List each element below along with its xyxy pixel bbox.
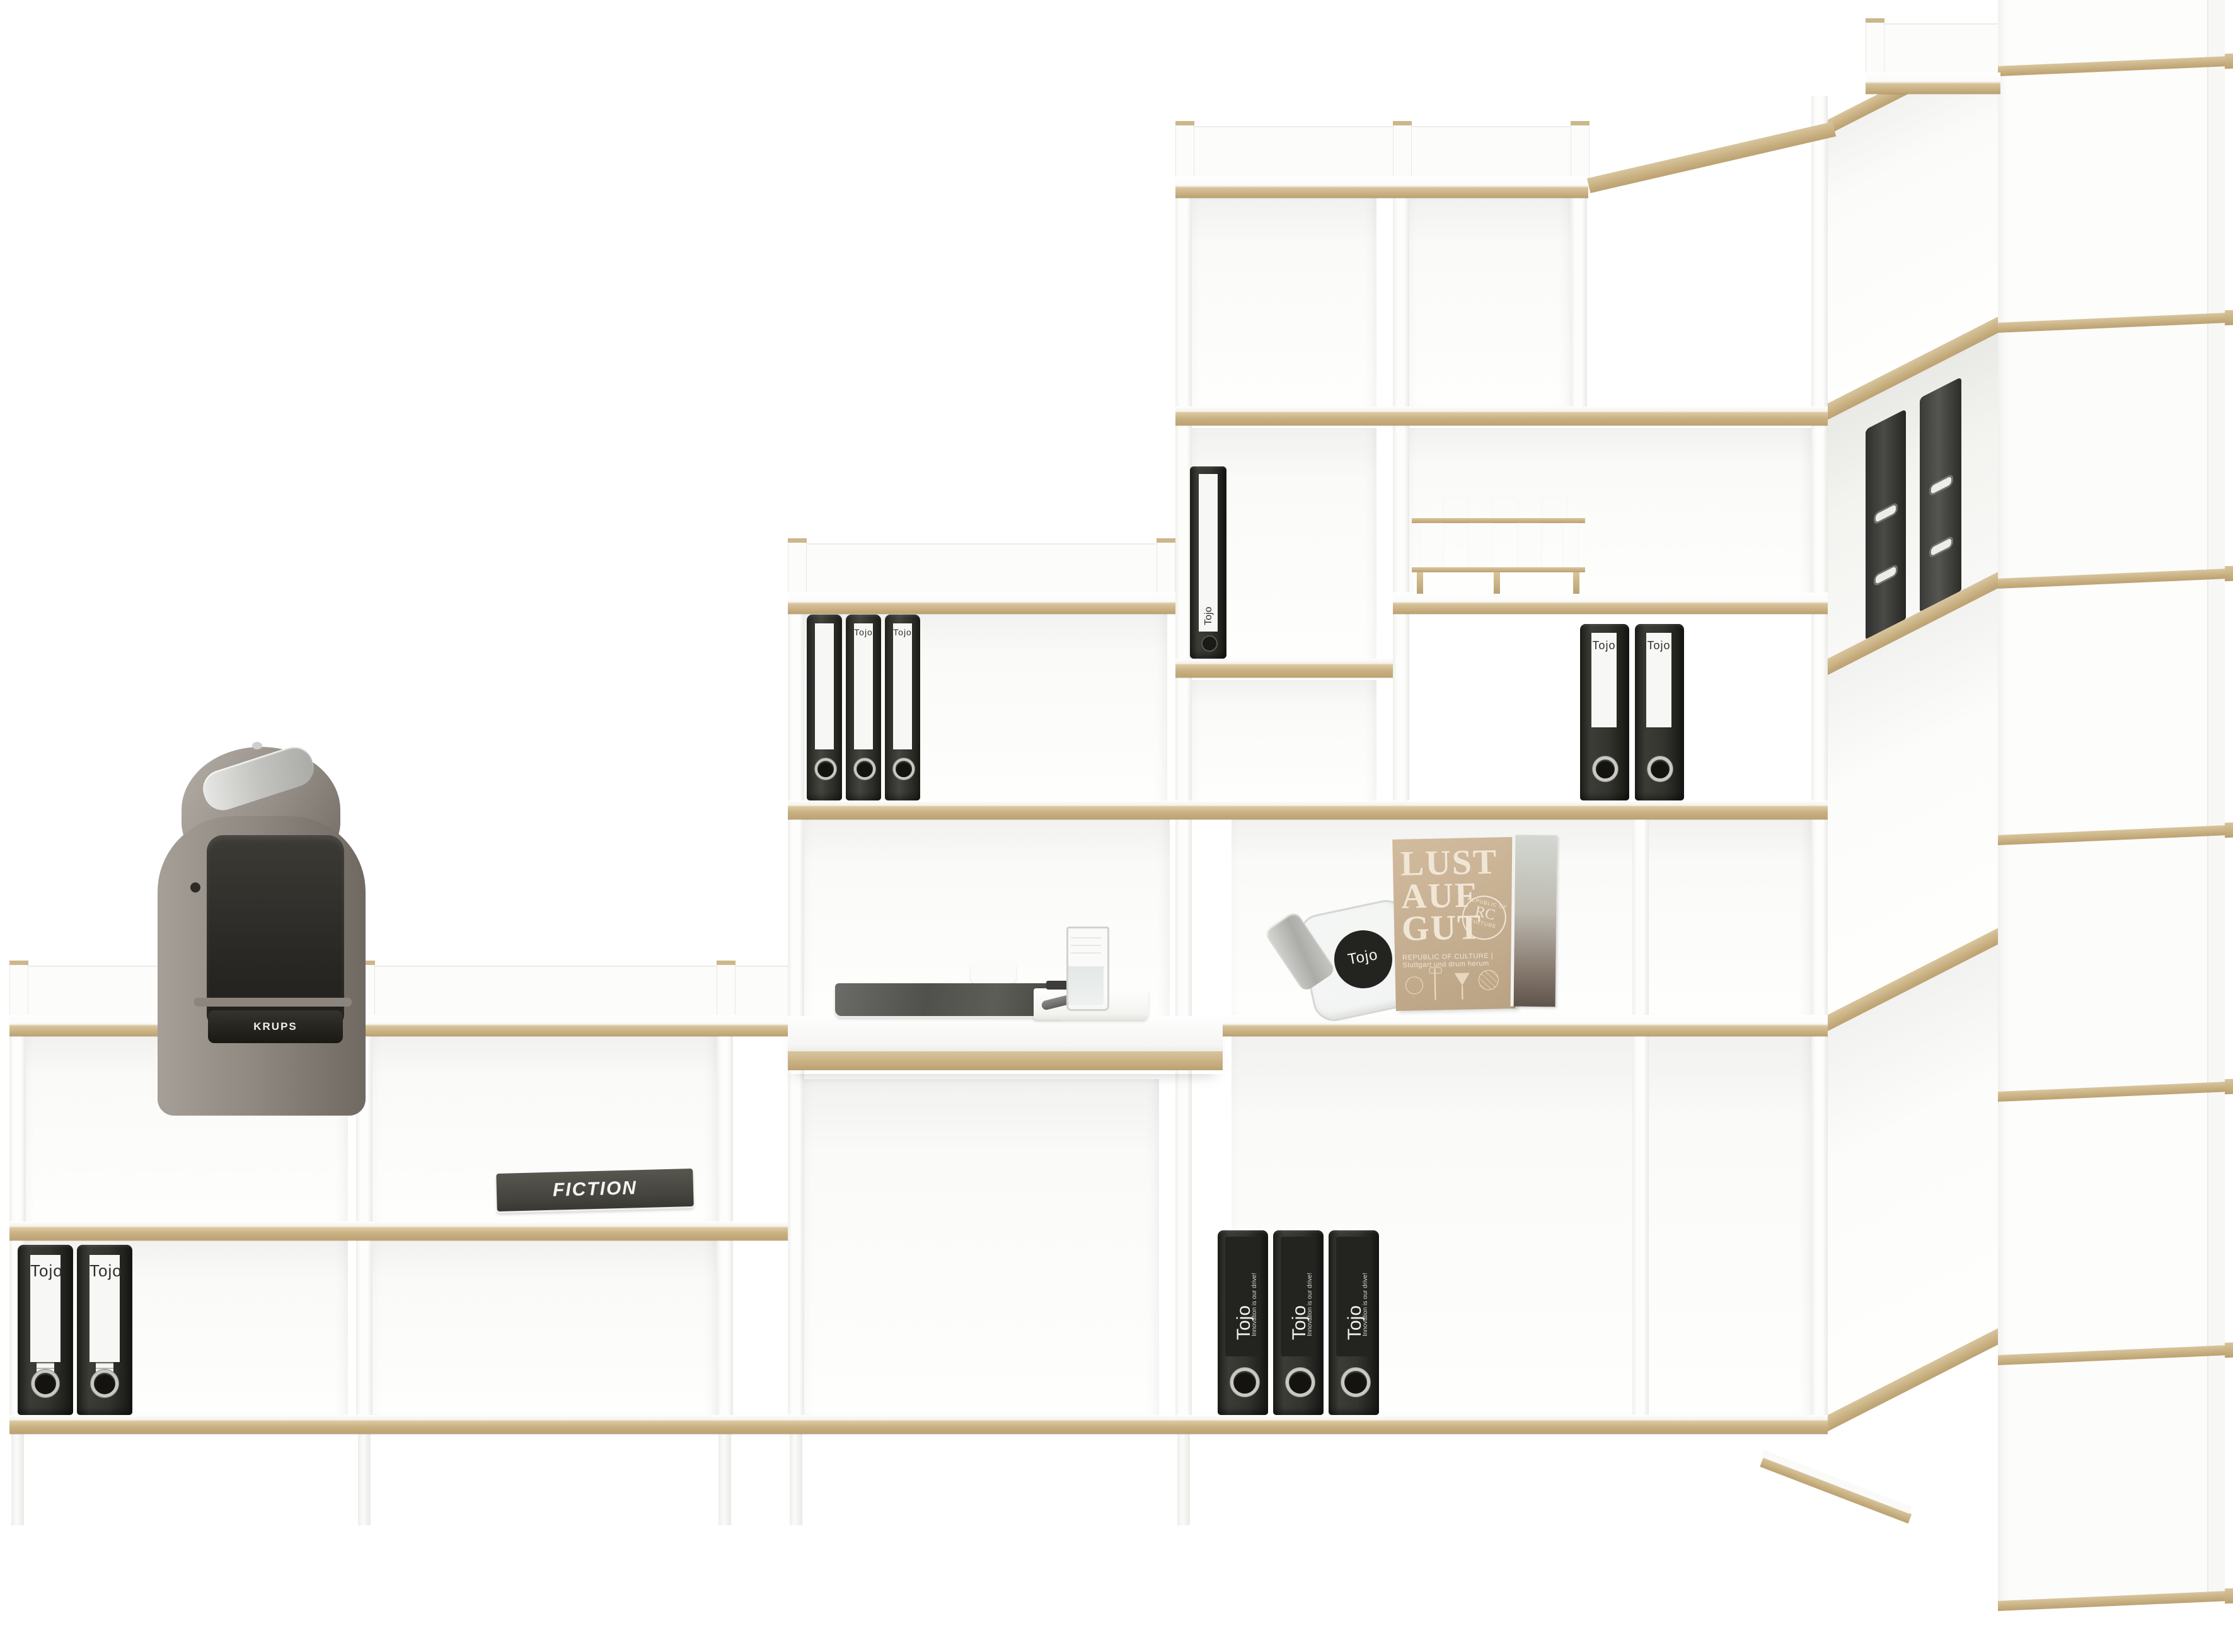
binder: Tojo xyxy=(1580,624,1629,800)
tower-panel xyxy=(1998,1355,2225,1611)
binder-label-dark: Tojo Innovation is our drive! xyxy=(1336,1237,1371,1356)
binder-label: Tojo xyxy=(893,623,912,749)
shelf-board xyxy=(9,1015,788,1036)
binder-label: Tojo xyxy=(854,623,873,749)
tower-panel xyxy=(1998,579,2225,835)
tower-panel xyxy=(1998,323,2225,579)
model-panel xyxy=(1419,523,1443,567)
model-leg xyxy=(1417,572,1423,594)
back-upstand xyxy=(788,543,1175,594)
water-glass xyxy=(1066,927,1109,1011)
divider-panel xyxy=(1393,176,1409,800)
panel-cap xyxy=(1393,121,1412,181)
binder-grip-slot xyxy=(1874,501,1898,525)
tower-panel xyxy=(1998,835,2225,1092)
binder-label: Tojo xyxy=(89,1255,120,1362)
binder-grip-slot xyxy=(1929,535,1953,559)
panel-cap xyxy=(1157,538,1175,597)
divider-panel xyxy=(717,1015,733,1415)
shelf-board xyxy=(9,1222,788,1240)
binder-label-dark: Tojo Innovation is our drive! xyxy=(1281,1237,1316,1356)
binder-label: Tojo xyxy=(1591,633,1617,727)
binder: Tojo xyxy=(1635,624,1684,800)
compartment xyxy=(372,1240,717,1415)
water xyxy=(1068,966,1104,1005)
tenon-tab xyxy=(2225,1588,2233,1604)
lust-magazine: LUST AUF GUT REPUBLIC OF RC CULTURE REPU… xyxy=(1392,837,1516,1011)
panel-cap xyxy=(788,538,807,597)
binder-grip-slot xyxy=(1929,473,1953,497)
binder-label-text: Tojo xyxy=(89,1261,120,1281)
binder-grip-ring xyxy=(91,1370,118,1397)
binder-grip-ring xyxy=(1286,1368,1315,1397)
tenon-tab xyxy=(2225,310,2233,326)
tower-panel xyxy=(1998,0,2225,66)
binder: Tojo Innovation is our drive! xyxy=(1218,1230,1268,1415)
shelf-board xyxy=(1866,72,2000,94)
tenon-tab xyxy=(2225,566,2233,582)
panel-cap xyxy=(9,961,28,1019)
krups-logo-text: KRUPS xyxy=(253,1020,297,1032)
model-shelf xyxy=(1412,567,1585,572)
shelf-board xyxy=(1175,659,1393,678)
glass-ridge xyxy=(1071,945,1101,946)
notebook-cover xyxy=(835,983,1062,1016)
model-panel xyxy=(1563,523,1578,567)
machine-cap xyxy=(252,742,262,749)
compartment xyxy=(1192,198,1376,407)
divider-panel xyxy=(788,592,804,1415)
companion-magazine xyxy=(1511,835,1557,1007)
binder-grip-ring xyxy=(1593,756,1618,782)
binder-grip-ring xyxy=(1230,1368,1259,1397)
divider-panel xyxy=(1175,176,1192,1415)
back-upstand xyxy=(1866,23,1998,74)
shelf-board xyxy=(1393,592,1828,614)
binder-label-text: Tojo xyxy=(1591,639,1617,652)
glass-ridge xyxy=(1071,937,1101,939)
lineart-tower-top xyxy=(1429,967,1441,973)
panel-cap xyxy=(1866,18,1884,77)
binder: Tojo xyxy=(77,1245,132,1415)
compartment xyxy=(1409,198,1572,407)
binder-label-text: Tojo xyxy=(1646,639,1671,652)
machine-drip-tray: KRUPS xyxy=(208,1010,343,1043)
binder-label-dark: Tojo Innovation is our drive! xyxy=(1225,1237,1261,1356)
model-panel xyxy=(1443,498,1468,518)
lineart-glass-stem xyxy=(1462,986,1463,1000)
product-photo-stage: KRUPS Tojo Tojo FICTION Tojo Tojo xyxy=(0,0,2233,1652)
panel-cap xyxy=(717,961,736,1019)
binder-slogan-text: Innovation is our drive! xyxy=(1307,1242,1313,1336)
binder-label: Tojo xyxy=(1646,633,1671,727)
model-panel xyxy=(1468,523,1492,567)
model-panel xyxy=(1518,523,1542,567)
divider-panel xyxy=(1571,176,1587,407)
binder-grip-ring xyxy=(1341,1368,1370,1397)
fiction-magazine: FICTION xyxy=(496,1169,693,1211)
shelf-board xyxy=(1216,1015,1828,1036)
machine-front-recess xyxy=(207,835,344,1024)
tower-panel xyxy=(1998,66,2225,323)
divider-panel xyxy=(1632,819,1649,1415)
tower-panel xyxy=(1998,1092,2225,1355)
binder-grip-ring xyxy=(893,758,915,780)
binder-grip-slot xyxy=(1874,563,1898,587)
binder-slogan-text: Innovation is our drive! xyxy=(1362,1242,1369,1336)
lineart-wheel xyxy=(1405,976,1424,995)
jar-label-text: Tojo xyxy=(1346,946,1379,968)
stepped-shelf-edge xyxy=(1587,122,1836,193)
shelf-board xyxy=(788,592,1175,614)
lust-lineart xyxy=(1401,963,1509,1005)
tenon-tab xyxy=(2225,823,2233,838)
model-panel xyxy=(1542,498,1567,518)
white-box xyxy=(971,962,1016,983)
binder xyxy=(807,615,842,800)
binder-label-text: Tojo xyxy=(893,627,912,637)
shelf-board xyxy=(9,1415,1828,1434)
binder: Tojo xyxy=(18,1245,73,1415)
binder-grip-ring xyxy=(815,758,836,780)
desk-edge xyxy=(788,1051,1223,1070)
lineart-ferris xyxy=(1479,970,1499,991)
dark-binder xyxy=(1920,377,1961,612)
corner-front-panel xyxy=(1811,96,1828,1415)
binder-label-text: Tojo xyxy=(854,627,873,637)
mini-shelf-model xyxy=(1412,498,1585,594)
back-upstand xyxy=(9,966,788,1016)
tenon-tab xyxy=(2225,1079,2233,1095)
shelf-board xyxy=(1175,407,1828,425)
binder: Tojo Innovation is our drive! xyxy=(1329,1230,1379,1415)
back-upstand xyxy=(1175,126,1588,178)
compartment xyxy=(1192,680,1376,800)
binder-label: Tojo xyxy=(1199,474,1218,632)
binder-grip-ring xyxy=(32,1370,59,1397)
machine-tray-rail xyxy=(194,998,352,1007)
binder-label xyxy=(815,623,834,749)
binder: Tojo xyxy=(885,615,920,800)
shelf-board xyxy=(1175,176,1588,198)
coffee-machine: KRUPS xyxy=(158,747,366,1015)
desk-surface xyxy=(788,1016,1223,1051)
tenon-tab xyxy=(2225,54,2233,69)
binder-grip-ring xyxy=(1647,756,1673,782)
compartment xyxy=(26,1240,348,1415)
tower-edge-strip xyxy=(2207,0,2225,1602)
right-tower xyxy=(1998,0,2233,1652)
binder-grip-ring xyxy=(854,758,875,780)
lineart-glass xyxy=(1455,973,1470,986)
corner-wedge xyxy=(1828,0,1999,1652)
shelf-board xyxy=(788,800,1828,819)
binder: Tojo xyxy=(1190,466,1226,659)
compartment xyxy=(804,1079,1159,1415)
binder: Tojo xyxy=(846,615,881,800)
model-shelf xyxy=(1412,518,1585,523)
fiction-title: FICTION xyxy=(496,1169,693,1210)
model-panel xyxy=(1492,498,1518,518)
model-leg xyxy=(1494,572,1500,594)
desk-panel xyxy=(788,1016,1223,1074)
panel-cap xyxy=(1571,121,1590,181)
dark-binder xyxy=(1866,409,1906,640)
binder-label: Tojo xyxy=(30,1255,61,1362)
panel-cap xyxy=(1175,121,1194,181)
model-leg xyxy=(1573,572,1579,594)
glass-ridge xyxy=(1071,952,1101,954)
machine-button xyxy=(190,882,200,892)
binder-label-text: Tojo xyxy=(1203,480,1215,625)
binder-grip-ring xyxy=(1201,635,1218,652)
binder-label-text: Tojo xyxy=(30,1261,61,1281)
tenon-tab xyxy=(2225,1343,2233,1358)
binder: Tojo Innovation is our drive! xyxy=(1273,1230,1324,1415)
binder-slogan-text: Innovation is our drive! xyxy=(1251,1242,1258,1336)
